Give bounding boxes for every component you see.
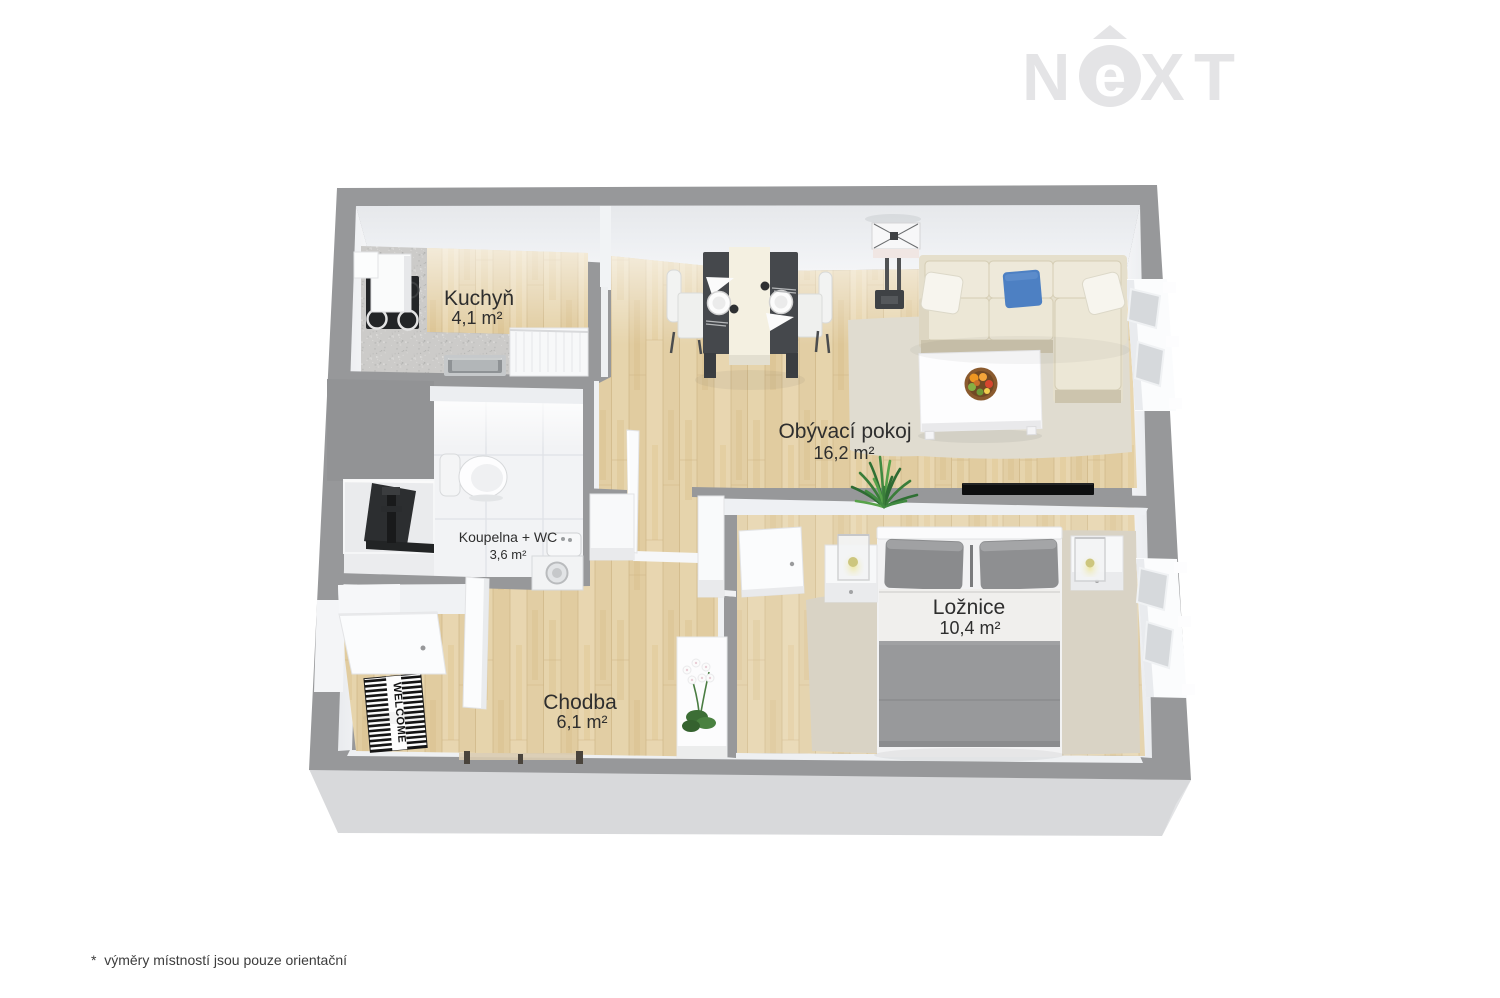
svg-text:Kuchyň: Kuchyň [444, 287, 514, 310]
svg-text:Koupelna + WC: Koupelna + WC [459, 529, 557, 545]
svg-text:4,1 m²: 4,1 m² [451, 308, 502, 328]
svg-text:Chodba: Chodba [543, 691, 617, 714]
svg-text:T: T [1194, 40, 1235, 115]
svg-text:16,2 m²: 16,2 m² [813, 443, 874, 463]
svg-text:N: N [1022, 40, 1070, 115]
svg-text:X: X [1140, 40, 1185, 115]
svg-text:e: e [1094, 44, 1126, 109]
svg-text:3,6 m²: 3,6 m² [490, 547, 528, 562]
svg-text:* výměry místností jsou pouze: * výměry místností jsou pouze orientační [91, 952, 347, 968]
svg-text:Obývací pokoj: Obývací pokoj [778, 420, 911, 443]
svg-text:Ložnice: Ložnice [933, 596, 1005, 619]
svg-text:10,4 m²: 10,4 m² [939, 618, 1000, 638]
svg-text:6,1 m²: 6,1 m² [556, 712, 607, 732]
